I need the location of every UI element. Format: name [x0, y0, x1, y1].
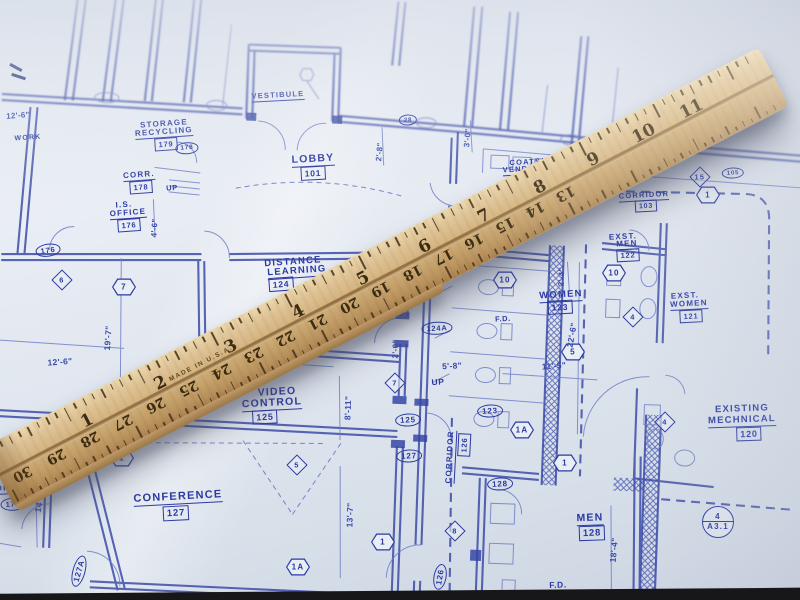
ruler-tick — [135, 426, 142, 438]
ruler-tick — [773, 105, 777, 111]
dimension-label: 2'-8" — [375, 142, 385, 161]
ruler-tick — [588, 137, 592, 143]
ruler-number: 29 — [44, 445, 69, 468]
room-label: CONFERENCE — [133, 489, 223, 507]
ruler-number: 20 — [337, 293, 362, 316]
ruler-tick — [91, 393, 95, 399]
ruler-number: 26 — [143, 393, 168, 416]
ruler-tick — [395, 237, 401, 247]
ruler-tick — [64, 408, 72, 422]
dimension-label: 3'-0" — [463, 128, 473, 147]
ruler-tick — [725, 126, 731, 135]
ruler-tick — [688, 150, 691, 154]
ruler-tick — [404, 232, 408, 238]
room-number-tag: 126 — [457, 433, 471, 457]
ruler-tick — [401, 296, 405, 302]
keynote-hex-tag: 1 — [696, 187, 720, 204]
note-text: F.D. — [495, 315, 511, 323]
door-number-tag: 178 — [175, 141, 199, 154]
ruler-tick — [248, 313, 254, 323]
ruler-tick — [211, 332, 219, 346]
section-marker: 4A3.1 — [702, 506, 734, 538]
ruler-number: 2 — [151, 372, 171, 395]
ruler-tick — [717, 71, 721, 77]
ruler-tick — [371, 312, 375, 318]
ruler-tick — [472, 262, 475, 266]
door-number-tag: 105 — [722, 167, 745, 179]
ruler-tick — [36, 422, 40, 428]
ruler-number: 23 — [241, 343, 266, 366]
ruler-tick — [229, 322, 234, 330]
ruler-tick — [735, 126, 738, 130]
ruler-tick — [601, 190, 607, 199]
door-number-tag: 28 — [399, 114, 418, 126]
ruler-tick — [663, 158, 669, 167]
ruler-tick — [73, 403, 77, 409]
ruler-tick — [533, 165, 537, 171]
ruler-tick — [616, 123, 622, 133]
ruler-tick — [432, 280, 436, 286]
ruler-tick — [340, 265, 345, 273]
room-number-tag: 178 — [129, 180, 153, 194]
dimension-label: 2'-4" — [558, 267, 567, 286]
ruler-tick — [185, 408, 189, 414]
ruler-tick — [257, 308, 261, 314]
ruler-tick — [154, 424, 158, 430]
ruler-tick — [642, 174, 645, 178]
ruler-tick — [568, 202, 575, 214]
ruler-tick — [137, 370, 145, 384]
room-number-tag: 179 — [154, 137, 178, 151]
keynote-hex-tag: 1A — [286, 559, 310, 576]
ruler-tick — [649, 169, 653, 175]
keynote-diamond-tag: 8 — [444, 520, 465, 541]
ruler-number: 15 — [492, 213, 517, 236]
door-number-tag: 126 — [431, 563, 448, 591]
ruler-tick — [597, 132, 602, 140]
ruler-number: 18 — [400, 261, 425, 284]
ruler-tick — [487, 189, 492, 197]
keynote-diamond-tag: 6 — [51, 269, 72, 290]
ruler-tick — [754, 107, 761, 119]
ruler-tick — [611, 190, 614, 194]
ruler-tick — [292, 349, 298, 358]
ruler-tick — [661, 99, 665, 105]
note-text: UP — [431, 377, 444, 386]
ruler-tick — [719, 134, 722, 138]
ruler-tick — [742, 121, 746, 127]
room-number-tag: 101 — [300, 166, 325, 181]
ruler-tick — [503, 246, 506, 250]
ruler-tick — [110, 384, 114, 390]
ruler-tick — [202, 336, 206, 342]
dimension-label: 2'-0" — [392, 339, 401, 358]
ruler-tick — [106, 445, 112, 454]
ruler-tick — [643, 109, 647, 115]
keynote-hex-tag: 10 — [493, 272, 517, 289]
ruler-tick — [514, 175, 518, 181]
ruler-tick — [459, 203, 463, 209]
room-number-tag: 176 — [117, 218, 141, 232]
dimension-label: 5'-8" — [442, 361, 462, 371]
keynote-hex-tag: 1 — [553, 455, 577, 472]
ruler-tick — [539, 222, 545, 231]
ruler-number: 13 — [553, 182, 578, 205]
ruler-number: 28 — [77, 427, 102, 450]
ruler-tick — [692, 138, 699, 150]
ruler-tick — [494, 248, 498, 254]
ruler-tick — [216, 392, 220, 398]
door-number-tag: 124A — [421, 321, 453, 335]
ruler-number: 21 — [305, 310, 330, 333]
room-number-tag: 123 — [547, 300, 572, 315]
ruler-tick — [534, 230, 537, 234]
ruler-tick — [18, 431, 22, 437]
ruler-tick — [123, 440, 127, 446]
room-number-tag: 121 — [679, 309, 703, 323]
ruler-tick — [266, 303, 271, 311]
keynote-hex-tag: 1 — [371, 534, 395, 551]
ruler-tick — [349, 260, 353, 266]
door-number-tag: 128 — [487, 477, 513, 491]
room-number-tag: 122 — [616, 248, 640, 262]
ruler-tick — [456, 270, 459, 274]
ruler-tick — [376, 246, 381, 254]
room-label: WORK — [14, 134, 41, 143]
ruler-tick — [45, 417, 50, 425]
ruler-tick — [54, 412, 58, 418]
ruler-tick — [711, 137, 715, 143]
dimension-label: 12'-6" — [6, 111, 30, 121]
ruler-tick — [367, 251, 371, 257]
room-number-tag: 103 — [635, 199, 658, 212]
ruler-tick — [570, 146, 574, 152]
ruler-tick — [238, 317, 242, 323]
ruler-tick — [463, 264, 467, 270]
ruler-tick — [146, 365, 150, 371]
ruler-tick — [735, 61, 739, 67]
ruler-number: 22 — [273, 326, 298, 349]
ruler-tick — [580, 206, 583, 210]
ruler-number: 30 — [10, 462, 35, 485]
ruler-tick — [165, 355, 169, 361]
ruler-number: 11 — [676, 95, 706, 124]
note-text: F.D. — [549, 580, 567, 589]
ruler-tick — [27, 427, 33, 437]
ruler-tick — [278, 360, 282, 366]
room-label: CORRIDOR — [445, 430, 458, 484]
ruler-tick — [704, 142, 707, 146]
ruler-tick — [518, 238, 521, 242]
door-number-tag: 127A — [69, 554, 90, 589]
ruler-tick — [386, 241, 390, 247]
ruler-tick — [44, 477, 50, 486]
room-label: VESTIBULE — [251, 90, 304, 102]
ruler-number: 10 — [629, 119, 659, 148]
ruler-tick — [551, 156, 555, 162]
ruler-tick — [496, 184, 500, 190]
ruler-tick — [549, 222, 552, 226]
ruler-tick — [634, 113, 639, 121]
ruler-tick — [12, 490, 19, 502]
keynote-hex-tag: 1A — [510, 422, 534, 439]
ruler-tick — [726, 66, 734, 80]
door-number-tag: 176 — [35, 242, 61, 258]
ruler-tick — [565, 214, 568, 218]
ruler-tick — [0, 441, 3, 447]
ruler-tick — [197, 394, 204, 406]
ruler-tick — [542, 161, 548, 171]
ruler-tick — [630, 170, 637, 182]
ruler-tick — [100, 389, 106, 399]
ruler-tick — [441, 213, 445, 219]
ruler-tick — [183, 346, 187, 352]
ruler-tick — [30, 488, 34, 494]
ruler-tick — [303, 284, 308, 292]
ruler-tick — [422, 222, 426, 228]
ruler-tick — [673, 158, 676, 162]
room-label: MEN — [576, 512, 603, 525]
ruler-tick — [383, 298, 390, 310]
keynote-diamond-tag: 4 — [654, 411, 675, 432]
ruler-tick — [766, 111, 769, 115]
door-number-tag: 127 — [396, 449, 422, 463]
keynote-hex-tag: 7 — [112, 279, 136, 296]
room-label: LOBBY — [291, 153, 334, 168]
ruler-tick — [657, 166, 660, 170]
room-number-tag: 125 — [252, 409, 278, 424]
ruler-tick — [625, 118, 629, 124]
keynote-hex-tag: 10 — [602, 265, 626, 282]
dimension-label: 18'-4" — [609, 537, 620, 563]
ruler-tick — [707, 75, 712, 83]
ruler-number: 7 — [474, 205, 494, 228]
ruler-tick — [174, 351, 180, 361]
ruler-tick — [259, 362, 266, 374]
door-number-tag: 125 — [395, 413, 421, 427]
dimension-label: 4'-6" — [150, 218, 159, 237]
ruler-tick — [468, 199, 474, 209]
ruler-tick — [168, 413, 174, 422]
ruler-tick — [312, 279, 316, 285]
ruler-number: 17 — [431, 245, 456, 268]
ruler-tick — [119, 379, 124, 387]
ruler-tick — [698, 80, 702, 86]
dimension-label: 8'-11" — [343, 396, 352, 421]
note-text: UP — [166, 184, 178, 192]
room-number-tag: 128 — [579, 525, 606, 540]
ruler-tick — [230, 381, 236, 390]
ruler-tick — [750, 118, 753, 122]
ruler-tick — [680, 153, 684, 159]
dimension-label: 11'-5" — [542, 361, 567, 371]
ruler-tick — [82, 398, 87, 406]
ruler-tick — [627, 182, 630, 186]
ruler-tick — [525, 232, 529, 238]
ruler-tick — [560, 151, 565, 159]
ruler-tick — [8, 436, 13, 444]
dimension-label: 13'-7" — [345, 502, 354, 527]
ruler-number: 19 — [368, 277, 393, 300]
ruler-tick — [340, 328, 344, 334]
ruler-tick — [61, 472, 65, 478]
ruler-tick — [416, 286, 422, 295]
ruler-tick — [477, 254, 483, 263]
ruler-tick — [587, 201, 591, 207]
ruler-tick — [156, 360, 161, 368]
ruler-tick — [618, 185, 622, 191]
ruler-tick — [74, 458, 81, 470]
dimension-label: 12'-6" — [47, 357, 72, 367]
ruler-tick — [524, 170, 529, 178]
ruler-tick — [556, 216, 560, 222]
door-number-tag: 123 — [477, 404, 503, 418]
blueprint-photo: STORAGERECYCLING179178CORR.178UPLOBBY101… — [0, 0, 800, 600]
ruler-number: 24 — [209, 359, 234, 382]
ruler-tick — [506, 234, 513, 246]
ruler-tick — [247, 376, 251, 382]
ruler-tick — [321, 275, 327, 285]
ruler-tick — [744, 56, 749, 64]
ruler-tick — [128, 374, 132, 380]
ruler-number: 14 — [523, 197, 548, 220]
keynote-diamond-tag: 7 — [384, 372, 405, 393]
ruler-tick — [671, 94, 676, 102]
ruler-tick — [192, 341, 197, 349]
ruler-tick — [432, 218, 440, 232]
ruler-tick — [652, 104, 660, 118]
ruler-tick — [294, 289, 298, 295]
ruler-tick — [309, 344, 313, 350]
room-number-tag: 127 — [163, 505, 190, 521]
ruler-tick — [487, 254, 490, 258]
keynote-diamond-tag: 15 — [689, 166, 710, 187]
ruler-tick — [354, 318, 360, 327]
ruler-tick — [689, 85, 695, 95]
ruler-tick — [445, 266, 452, 278]
ruler-number: 27 — [110, 410, 135, 433]
ruler-tick — [220, 327, 224, 333]
ruler-tick — [680, 90, 684, 96]
ruler-tick — [330, 270, 334, 276]
ruler-tick — [450, 208, 455, 216]
room-number-tag: 120 — [736, 427, 762, 442]
ruler-number: 16 — [462, 229, 487, 252]
ruler-tick — [321, 330, 328, 342]
ruler-tick — [413, 227, 418, 235]
ruler-tick — [275, 298, 279, 304]
ruler-number: 9 — [584, 148, 604, 171]
keynote-diamond-tag: 5 — [286, 454, 307, 475]
room-label: MECHNICAL — [708, 414, 776, 428]
keynote-diamond-tag: 4 — [622, 306, 643, 327]
ruler-number: 8 — [530, 176, 550, 199]
ruler-tick — [596, 198, 599, 202]
ruler-tick — [478, 194, 482, 200]
ruler-tick — [441, 278, 444, 282]
ruler-tick — [92, 456, 96, 462]
ruler-tick — [606, 128, 610, 134]
dimension-label: 19'-7" — [103, 325, 113, 350]
ruler-tick — [505, 180, 513, 194]
